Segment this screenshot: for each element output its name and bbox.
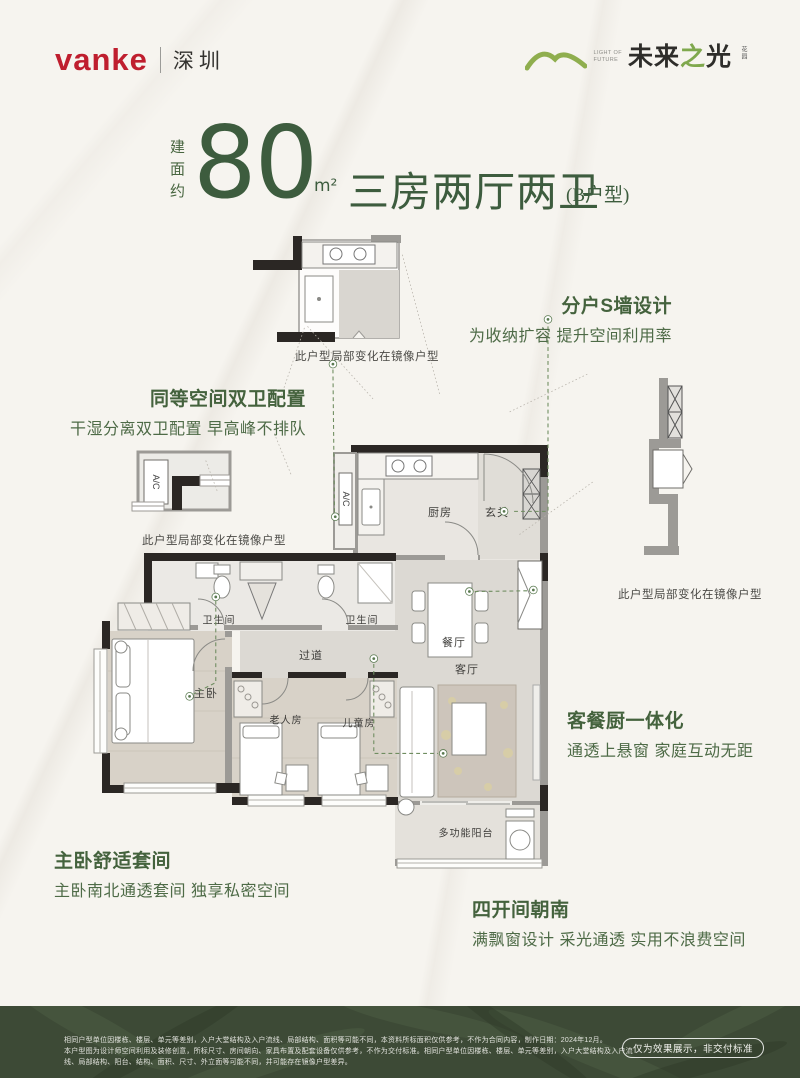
brand-lockup: vanke 深圳: [55, 44, 225, 75]
tagline-line2: FUTURE: [593, 57, 618, 63]
annotation-ldk: 客餐厨一体化 通透上悬窗 家庭互动无距: [567, 706, 753, 761]
project-tagline: LIGHT OF FUTURE: [593, 50, 621, 64]
vanke-logo: vanke: [55, 44, 148, 75]
mountain-icon: [525, 40, 587, 74]
tagline-line1: LIGHT OF: [593, 50, 621, 56]
project-name-post: 光: [706, 43, 732, 71]
annotation-desc: 为收纳扩容 提升空间利用率: [469, 322, 672, 346]
area-prefix: 建面约: [166, 139, 187, 205]
annotation-title: 四开间朝南: [472, 895, 746, 922]
annotation-desc: 通透上悬窗 家庭互动无距: [567, 737, 753, 761]
marker-icons: [186, 316, 552, 758]
annotation-master-suite: 主卧舒适套间 主卧南北通透套间 独享私密空间: [54, 846, 290, 901]
disclaimer-line1: 相同户型单位因楼栋、楼层、单元等差别，入户大堂结构及入户流线、局部结构、面积等可…: [64, 1035, 644, 1046]
annotation-desc: 满飘窗设计 采光通透 实用不浪费空间: [472, 926, 746, 950]
project-name: 未来之光: [628, 45, 732, 70]
unit-type-tag: (B户型): [566, 180, 629, 207]
annotation-double-bath: 同等空间双卫配置 干湿分离双卫配置 早高峰不排队: [70, 384, 306, 439]
annotation-south-rooms: 四开间朝南 满飘窗设计 采光通透 实用不浪费空间: [472, 895, 746, 950]
display-only-badge: 仅为效果展示，非交付标准: [622, 1038, 764, 1058]
annotation-title: 分户S墙设计: [469, 291, 672, 318]
city-label: 深圳: [173, 45, 225, 75]
logo-divider: [160, 47, 161, 73]
area-number: 80: [193, 113, 316, 213]
project-name-pre: 未来: [628, 43, 680, 71]
disclaimer-line2: 本户型图为设计师空间利用及装修创意，所标尺寸、房间朝向、家具布置及配套设备仅供参…: [64, 1046, 644, 1068]
annotation-desc: 干湿分离双卫配置 早高峰不排队: [70, 415, 306, 439]
project-logo: LIGHT OF FUTURE 未来之光 花园: [525, 40, 748, 74]
annotation-title: 主卧舒适套间: [54, 846, 290, 873]
annotation-title: 客餐厨一体化: [567, 706, 753, 733]
project-name-suffix: 花园: [739, 46, 748, 60]
disclaimer-text: 相同户型单位因楼栋、楼层、单元等差别，入户大堂结构及入户流线、局部结构、面积等可…: [64, 1035, 644, 1068]
layout-title: 三房两厅两卫: [348, 158, 600, 218]
annotation-title: 同等空间双卫配置: [70, 384, 306, 411]
annotation-desc: 主卧南北通透套间 独享私密空间: [54, 877, 290, 901]
area-unit: m²: [314, 176, 337, 196]
project-name-mid: 之: [680, 43, 706, 71]
annotation-s-wall: 分户S墙设计 为收纳扩容 提升空间利用率: [469, 291, 672, 346]
poster: vanke 深圳 LIGHT OF FUTURE 未来之光 花园 建面约 80 …: [0, 0, 800, 1078]
footer-bar: 相同户型单位因楼栋、楼层、单元等差别，入户大堂结构及入户流线、局部结构、面积等可…: [0, 1006, 800, 1078]
